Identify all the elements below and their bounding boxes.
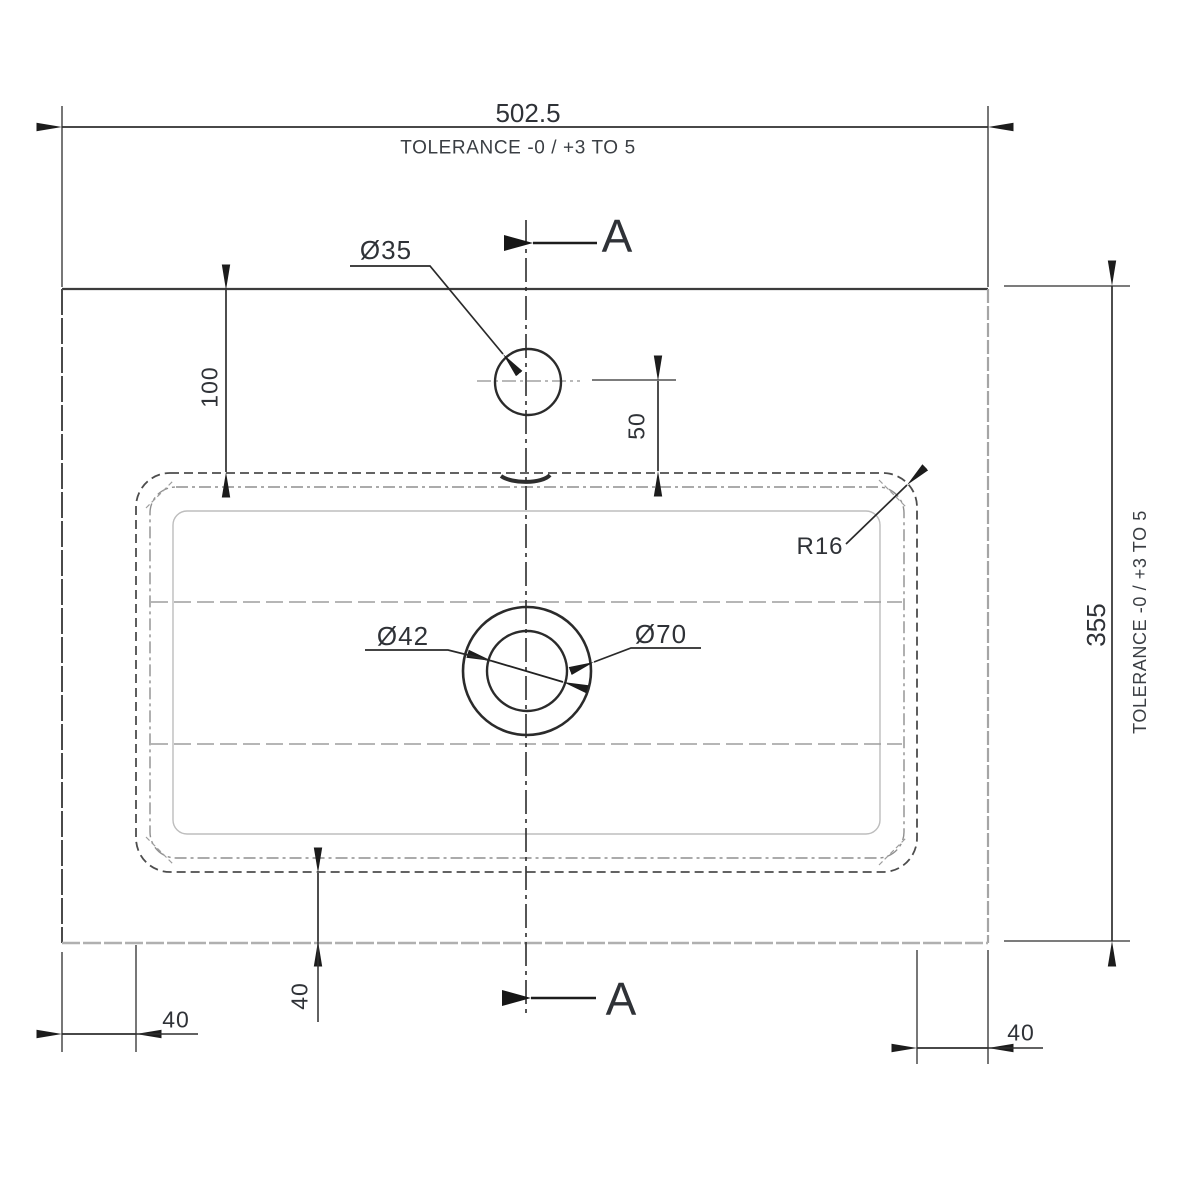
overall-width-value: 502.5: [495, 100, 560, 126]
waste-inner-diameter-callout: Ø42: [377, 623, 429, 649]
overall-width-tolerance: TOLERANCE -0 / +3 TO 5: [400, 139, 636, 158]
dim-bowl-right-margin: [917, 950, 1043, 1064]
overall-depth-value: 355: [1083, 603, 1109, 646]
tap-hole-diameter-callout: Ø35: [360, 237, 412, 263]
tap-offset-value: 100: [199, 366, 222, 407]
leader-corner-radius: [846, 485, 907, 544]
bowl-right-margin-value: 40: [1007, 1022, 1035, 1045]
leader-tap-diameter: [350, 266, 503, 354]
dim-bowl-left-margin: [62, 945, 198, 1052]
section-label-bottom: A: [606, 976, 637, 1022]
dim-overall-width: [62, 106, 988, 287]
tap-to-bowl-value: 50: [626, 412, 649, 440]
tap-hole: [495, 349, 561, 415]
waste-hole: [463, 607, 591, 735]
leader-waste-outer: [594, 648, 701, 662]
dim-overall-depth: [1004, 286, 1130, 941]
section-label-top: A: [602, 213, 633, 259]
waste-outer-diameter-callout: Ø70: [635, 621, 687, 647]
leader-waste-inner: [365, 650, 492, 661]
overall-depth-tolerance: TOLERANCE -0 / +3 TO 5: [1131, 510, 1149, 734]
corner-radius-callout: R16: [796, 535, 843, 559]
technical-drawing-basin-top-view: 502.5 TOLERANCE -0 / +3 TO 5 A Ø35 100 5…: [0, 0, 1200, 1200]
bowl-left-margin-value: 40: [162, 1009, 190, 1032]
bowl-front-margin-value: 40: [289, 982, 312, 1010]
